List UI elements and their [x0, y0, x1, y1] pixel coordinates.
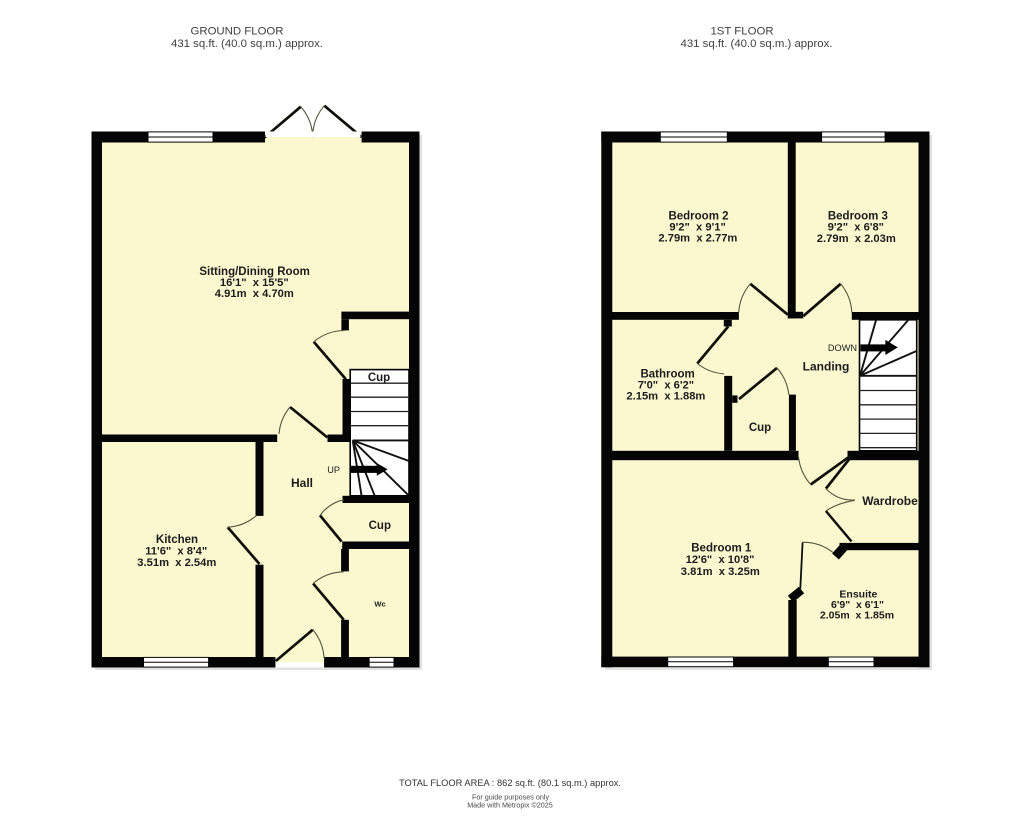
svg-text:Cup: Cup — [369, 520, 391, 532]
svg-text:Hall: Hall — [291, 476, 313, 490]
svg-text:Cup: Cup — [368, 372, 390, 384]
svg-text:11'6" x 8'4": 11'6" x 8'4" — [145, 545, 207, 557]
svg-text:3.51m x 2.54m: 3.51m x 2.54m — [137, 557, 216, 569]
svg-text:GROUND FLOOR: GROUND FLOOR — [190, 26, 283, 38]
svg-text:431 sq.ft. (40.0 sq.m.) approx: 431 sq.ft. (40.0 sq.m.) approx. — [171, 38, 323, 50]
svg-text:DOWN: DOWN — [828, 343, 857, 353]
svg-text:431 sq.ft. (40.0 sq.m.) approx: 431 sq.ft. (40.0 sq.m.) approx. — [681, 38, 833, 50]
svg-text:Bedroom 3: Bedroom 3 — [828, 210, 888, 222]
svg-text:2.05m x 1.85m: 2.05m x 1.85m — [820, 609, 894, 621]
svg-text:Cup: Cup — [749, 422, 771, 434]
svg-text:12'6" x 10'8": 12'6" x 10'8" — [686, 554, 755, 566]
svg-text:2.79m x 2.77m: 2.79m x 2.77m — [658, 233, 737, 245]
svg-text:Made with Metropix ©2025: Made with Metropix ©2025 — [467, 801, 553, 810]
svg-text:2.79m x 2.03m: 2.79m x 2.03m — [817, 233, 896, 245]
svg-text:UP: UP — [327, 465, 340, 475]
svg-text:TOTAL FLOOR AREA : 862 sq.ft.: TOTAL FLOOR AREA : 862 sq.ft. (80.1 sq.m… — [399, 778, 621, 788]
svg-text:Bedroom 1: Bedroom 1 — [691, 543, 752, 555]
svg-text:Landing: Landing — [803, 360, 850, 374]
svg-text:2.15m x 1.88m: 2.15m x 1.88m — [626, 391, 705, 403]
svg-text:Wc: Wc — [374, 600, 385, 609]
svg-text:4.91m x 4.70m: 4.91m x 4.70m — [215, 288, 294, 300]
svg-text:Bathroom: Bathroom — [640, 368, 694, 380]
svg-text:Kitchen: Kitchen — [156, 534, 198, 546]
svg-text:3.81m x 3.25m: 3.81m x 3.25m — [681, 566, 760, 578]
svg-text:Wardrobe: Wardrobe — [862, 494, 918, 508]
svg-text:1ST FLOOR: 1ST FLOOR — [710, 26, 773, 38]
svg-text:9'2" x 6'8": 9'2" x 6'8" — [828, 222, 884, 234]
